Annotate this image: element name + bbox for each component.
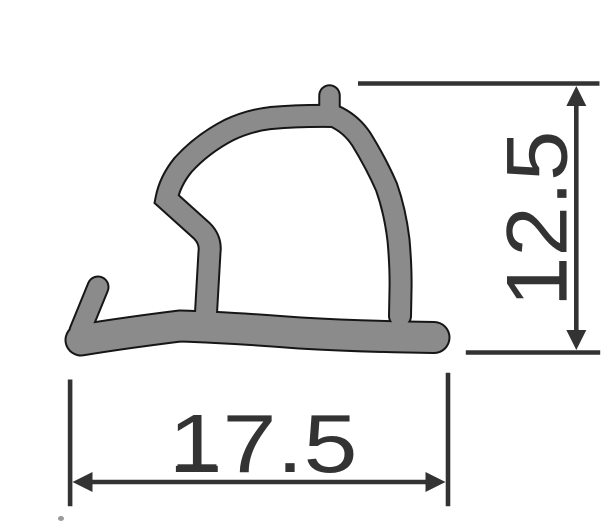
svg-text:17.5: 17.5 bbox=[169, 397, 358, 490]
svg-text:12.5: 12.5 bbox=[490, 131, 586, 308]
